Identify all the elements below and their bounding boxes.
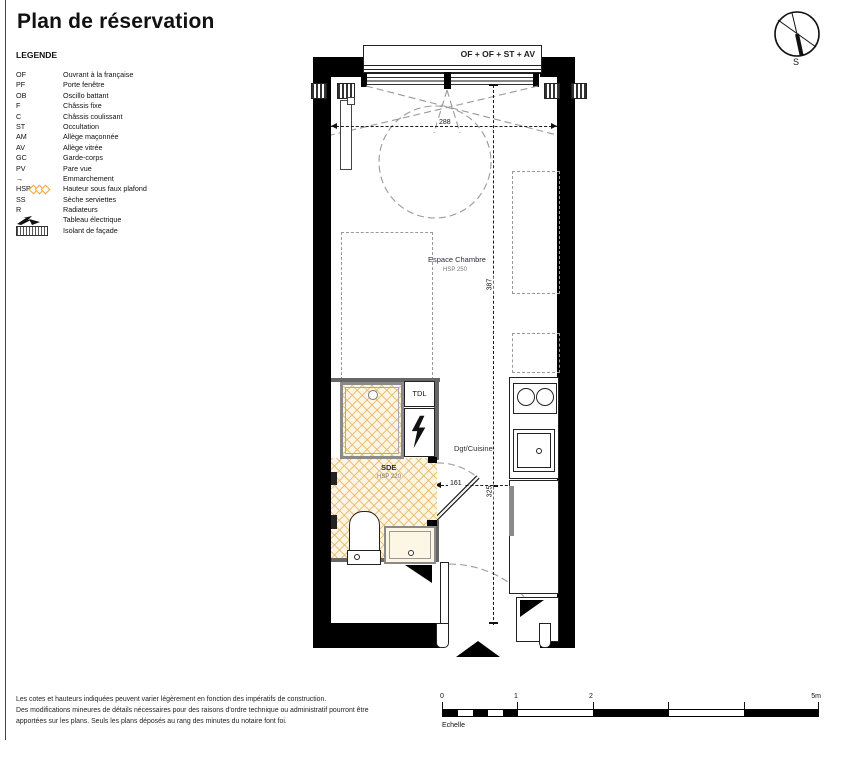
- room-label-chambre: Espace Chambre: [428, 255, 486, 264]
- scale-tick-label: 2: [589, 693, 593, 700]
- scale-tick-label: 5m: [811, 693, 821, 700]
- dim-label-161: 161: [448, 480, 464, 487]
- scale-bar: 0 1 2 5m Echelle: [442, 693, 819, 738]
- sink-drain: [536, 448, 542, 454]
- lightning-bolt-icon: [410, 415, 428, 449]
- radiator-valve: [347, 97, 355, 105]
- door-jamb: [427, 520, 437, 526]
- turning-radius-circle: [379, 106, 491, 218]
- window-swing-line: [331, 86, 538, 135]
- towel-dryer-mark: [331, 472, 337, 485]
- tdl-closet: TDL: [404, 381, 435, 407]
- tdl-label: TDL: [412, 389, 426, 398]
- toilet-flush-button: [354, 554, 360, 560]
- footnote-line: apportées sur les plans. Seuls les plans…: [16, 716, 369, 727]
- sde-door-arc: [437, 463, 478, 478]
- dim-tick: [489, 622, 498, 624]
- dim-label-387: 387: [486, 277, 493, 293]
- scale-segment: [593, 710, 669, 716]
- dim-tick: [489, 84, 498, 86]
- electric-closet: [404, 408, 435, 457]
- tall-unit-door-mark: [509, 486, 514, 536]
- kitchen-sink: [513, 429, 555, 472]
- towel-dryer-mark: [331, 515, 337, 529]
- burner: [536, 388, 554, 406]
- scale-tick-label: 0: [440, 693, 444, 700]
- dim-arrow: [331, 123, 337, 129]
- footnote-line: Les cotes et hauteurs indiquées peuvent …: [16, 694, 369, 705]
- scale-tick-label: 1: [514, 693, 518, 700]
- room-hsp-chambre: HSP 250: [443, 267, 467, 273]
- toilet-tank: [347, 550, 381, 565]
- footnote-line: Des modifications mineures de détails né…: [16, 705, 369, 716]
- vanity-unit: [384, 526, 436, 564]
- footnotes: Les cotes et hauteurs indiquées peuvent …: [16, 694, 369, 727]
- window-swing-line: [366, 86, 557, 135]
- cooktop: [513, 383, 557, 414]
- scale-segment: [473, 710, 488, 716]
- scale-segment: [503, 710, 518, 716]
- scale-bar-rule: [442, 709, 819, 717]
- floor-plan-page: Plan de réservation LEGENDE OFOuvrant à …: [0, 0, 852, 764]
- room-label-dgt-cuisine: Dgt/Cuisine: [454, 444, 493, 453]
- scale-segment: [443, 710, 458, 716]
- shower-drain: [368, 390, 378, 400]
- entry-door-jamb: [436, 623, 449, 648]
- wardrobe-outline: [512, 171, 560, 294]
- bed-outline: [341, 232, 433, 380]
- shower-tray: [340, 382, 404, 459]
- toilet-bowl: [349, 511, 380, 555]
- door-jamb: [428, 457, 437, 463]
- vanity-drain: [408, 550, 414, 556]
- scale-caption: Echelle: [442, 722, 465, 729]
- dim-label-288: 288: [437, 119, 453, 126]
- scale-segment: [744, 710, 818, 716]
- dim-line-288: [331, 126, 557, 127]
- dim-arrow: [551, 123, 557, 129]
- entry-door-leaf: [440, 562, 449, 626]
- radiator: [340, 100, 352, 170]
- dim-line-vertical: [493, 85, 494, 625]
- entry-door-jamb: [539, 623, 551, 648]
- room-label-sde: SDE: [381, 463, 396, 472]
- furniture-outline: [512, 333, 560, 373]
- sink-basin: [517, 433, 551, 468]
- kitchen-tall-unit: [509, 480, 559, 594]
- dim-label-325: 325: [486, 484, 493, 500]
- room-hsp-sde: HSP 220: [377, 474, 401, 480]
- burner: [517, 388, 535, 406]
